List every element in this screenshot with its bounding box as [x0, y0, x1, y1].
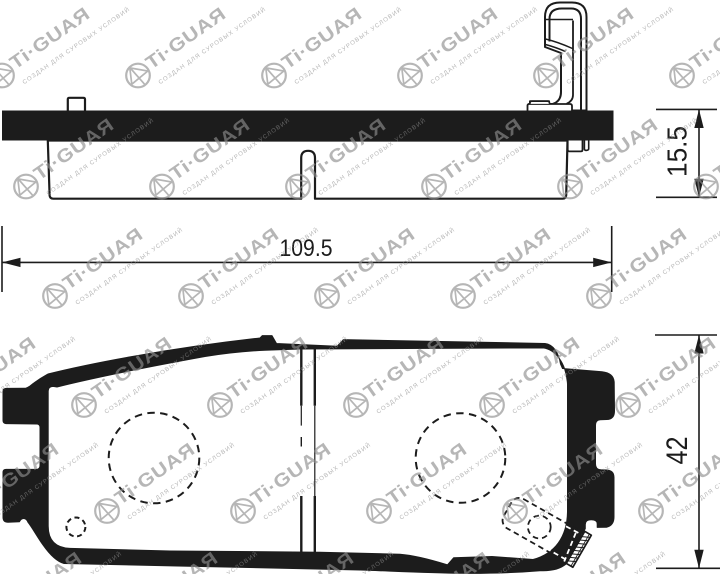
- svg-text:42: 42: [661, 437, 694, 465]
